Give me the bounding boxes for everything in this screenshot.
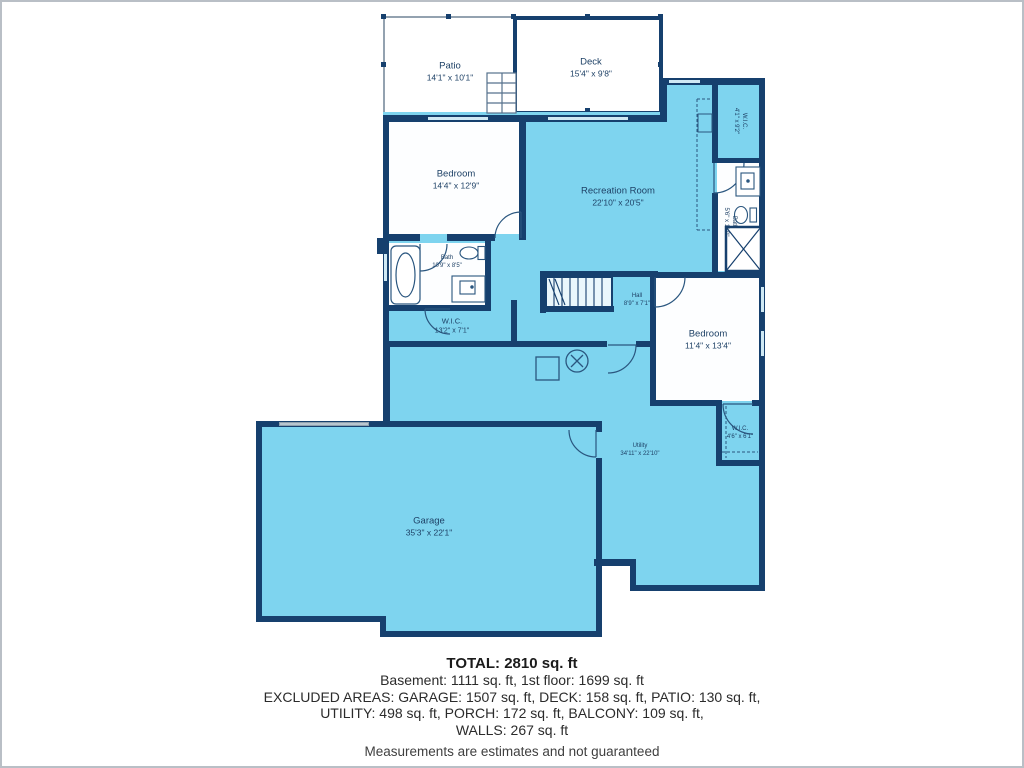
wall — [519, 118, 526, 240]
room-name: Bedroom — [685, 328, 731, 340]
total-area-line: TOTAL: 2810 sq. ft — [0, 655, 1024, 672]
wall — [650, 400, 722, 406]
room-label-deck: Deck 15'4" x 9'8" — [570, 56, 612, 79]
wall — [712, 193, 718, 272]
room-name: Utility — [620, 443, 659, 451]
wall — [383, 345, 390, 423]
survey-tick — [381, 14, 386, 19]
area-summary: TOTAL: 2810 sq. ft Basement: 1111 sq. ft… — [0, 655, 1024, 759]
wall — [650, 272, 656, 406]
room-name: Bedroom — [433, 168, 480, 180]
room-dims: 34'11" x 22'10" — [620, 451, 659, 459]
room-name: Bath — [432, 255, 462, 263]
room-dims: 10'9" x 8'5" — [432, 263, 462, 271]
wall — [716, 406, 722, 466]
room-label-recreation: Recreation Room 22'10" x 20'5" — [581, 185, 655, 208]
wall — [759, 348, 765, 591]
wall — [377, 238, 384, 254]
window — [760, 286, 765, 313]
room-label-bedroom-right: Bedroom 11'4" x 13'4" — [685, 328, 731, 351]
window — [547, 116, 629, 121]
walls-area-line: WALLS: 267 sq. ft — [0, 722, 1024, 739]
wall — [380, 631, 602, 637]
room-name: Garage — [406, 515, 453, 527]
room-label-wic-top: W.I.C. 4'1" x 9'2" — [731, 108, 747, 134]
room-dims: 8'9" x 7'1" — [624, 301, 650, 309]
wall — [389, 234, 420, 241]
survey-tick — [446, 14, 451, 19]
room-label-hall: Hall 8'9" x 7'1" — [624, 293, 650, 309]
room-label-bath-middle: Bath 10'9" x 8'5" — [432, 255, 462, 271]
survey-tick — [511, 14, 516, 19]
room-bath-middle — [389, 243, 486, 306]
window — [427, 116, 489, 121]
room-name: W.I.C. — [739, 108, 747, 134]
room-label-bedroom-upper: Bedroom 14'4" x 12'9" — [433, 168, 480, 191]
room-name: W.I.C. — [435, 317, 470, 327]
wall — [596, 421, 602, 432]
wall — [485, 240, 491, 310]
wall — [389, 305, 491, 311]
disclaimer-text: Measurements are estimates and not guara… — [0, 744, 1024, 759]
room-name: W.I.C. — [727, 426, 753, 434]
room-name: Hall — [624, 293, 650, 301]
wall — [712, 82, 718, 163]
window — [383, 253, 388, 282]
room-dims: 14'4" x 12'9" — [433, 181, 480, 192]
room-label-bath-right: Bath 5'6" x 11'0" — [721, 207, 737, 236]
wall — [540, 306, 614, 312]
room-dims: 15'4" x 9'8" — [570, 69, 612, 80]
room-dims: 13'2" x 7'1" — [435, 326, 470, 335]
room-dims: 22'10" x 20'5" — [581, 198, 655, 209]
wall — [383, 341, 607, 347]
wall — [256, 421, 262, 622]
room-label-patio: Patio 14'1" x 10'1" — [427, 60, 474, 83]
survey-tick — [585, 14, 590, 19]
wall — [656, 272, 765, 278]
survey-tick — [658, 14, 663, 19]
room-name: Patio — [427, 60, 474, 72]
room-dims: 35'3" x 22'1" — [406, 528, 453, 539]
room-dims: 4'6" x 6'1" — [727, 434, 753, 442]
wall — [383, 115, 389, 348]
window — [760, 330, 765, 357]
window — [668, 79, 701, 84]
room-label-wic-middle: W.I.C. 13'2" x 7'1" — [435, 317, 470, 336]
wall — [540, 271, 658, 277]
room-dims: 4'1" x 9'2" — [731, 108, 739, 134]
excluded-areas-line-1: EXCLUDED AREAS: GARAGE: 1507 sq. ft, DEC… — [0, 689, 1024, 706]
survey-tick — [381, 62, 386, 67]
room-label-utility: Utility 34'11" x 22'10" — [620, 443, 659, 459]
room-label-garage: Garage 35'3" x 22'1" — [406, 515, 453, 538]
room-label-wic-lower: W.I.C. 4'6" x 6'1" — [727, 426, 753, 442]
garage-door-opening — [279, 422, 369, 426]
wall — [716, 460, 765, 466]
wall — [256, 616, 386, 622]
wall — [596, 458, 602, 637]
room-name: Recreation Room — [581, 185, 655, 197]
wall — [511, 300, 517, 347]
wall — [630, 585, 765, 591]
survey-tick — [658, 62, 663, 67]
floors-area-line: Basement: 1111 sq. ft, 1st floor: 1699 s… — [0, 672, 1024, 689]
room-name: Deck — [570, 56, 612, 68]
room-dims: 5'6" x 11'0" — [721, 207, 729, 236]
wall — [660, 78, 667, 122]
floor-plan-page: Patio 14'1" x 10'1" Deck 15'4" x 9'8" Be… — [0, 0, 1024, 768]
wall — [712, 158, 765, 163]
room-dims: 14'1" x 10'1" — [427, 73, 474, 84]
excluded-areas-line-2: UTILITY: 498 sq. ft, PORCH: 172 sq. ft, … — [0, 705, 1024, 722]
room-name: Bath — [729, 207, 737, 236]
room-dims: 11'4" x 13'4" — [685, 341, 731, 352]
